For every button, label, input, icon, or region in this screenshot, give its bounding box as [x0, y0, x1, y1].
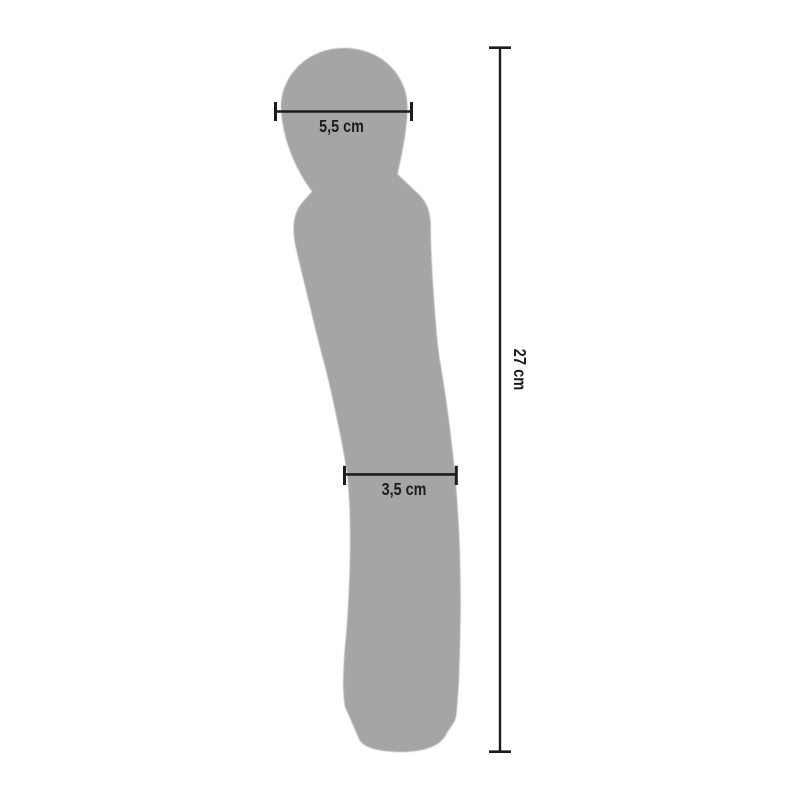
svg-text:5,5 cm: 5,5 cm: [319, 118, 364, 136]
svg-text:3,5 cm: 3,5 cm: [382, 481, 427, 499]
svg-text:27 cm: 27 cm: [509, 349, 528, 391]
